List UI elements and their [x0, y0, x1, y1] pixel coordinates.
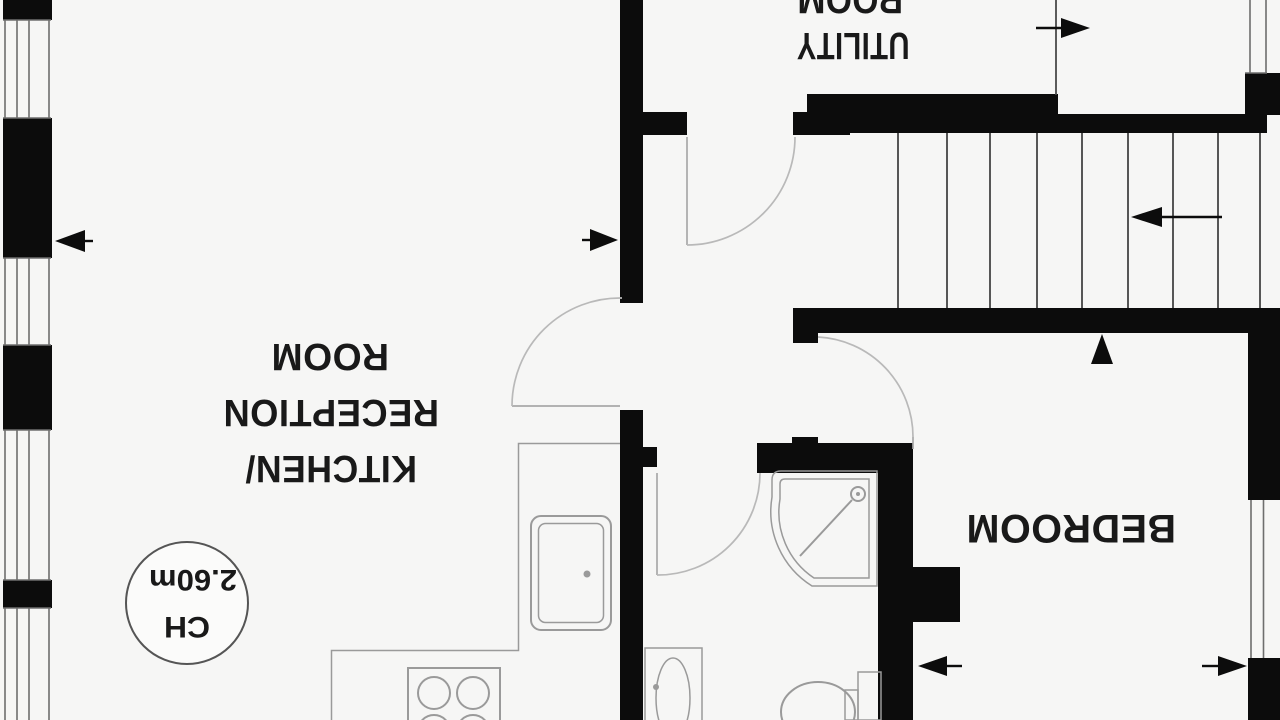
bedroom-arrow-right	[1202, 656, 1247, 676]
reception-arrow-left	[55, 230, 93, 252]
kitchen-label-line2: RECEPTION	[223, 391, 439, 433]
kitchen-sink	[531, 516, 611, 630]
utility-arrow	[1036, 18, 1090, 38]
window-left-3	[3, 430, 51, 580]
window-left-4	[3, 608, 51, 720]
stair-treads	[898, 133, 1260, 308]
shower-diagonal	[800, 500, 852, 556]
kitchen-label-line3: ROOM	[271, 335, 389, 377]
window-top-right	[1245, 0, 1267, 73]
window-left-1	[3, 20, 51, 118]
ceiling-height-line2: 2.60m	[149, 563, 237, 596]
kitchen-reception-label: KITCHEN/ RECEPTION ROOM	[223, 335, 439, 489]
ceiling-height-line1: CH	[164, 610, 210, 643]
utility-label-line2: ROOM	[797, 0, 903, 20]
ceiling-height-badge: CH 2.60m	[126, 542, 248, 664]
hob-burner	[418, 715, 450, 720]
window-bedroom-right	[1251, 500, 1264, 658]
reception-arrow-right	[582, 229, 618, 251]
bathroom-basin	[645, 648, 702, 720]
window-left-2	[3, 258, 51, 345]
bedroom-arrow-left	[918, 656, 962, 676]
central-wall	[620, 0, 687, 720]
floor-plan-page: KITCHEN/ RECEPTION ROOM UTILITY ROOM BED…	[0, 0, 1280, 720]
bedroom-entry-arrow	[1091, 334, 1113, 364]
utility-label-line1: UTILITY	[797, 24, 910, 66]
basin-tap-dot	[653, 684, 659, 690]
stair-direction-arrow	[1131, 207, 1222, 227]
toilet	[781, 672, 881, 720]
door-kitchen	[512, 298, 622, 406]
ceiling-height-circle	[126, 542, 248, 664]
sink-drain-dot	[584, 571, 591, 578]
kitchen-label-line1: KITCHEN/	[245, 447, 417, 489]
left-exterior-wall	[3, 0, 52, 720]
bedroom-label: BEDROOM	[966, 506, 1176, 550]
door-bathroom	[657, 473, 760, 575]
door-utility	[687, 137, 795, 245]
bedroom-label-text: BEDROOM	[966, 506, 1176, 550]
door-bedroom	[818, 337, 913, 449]
utility-room-label: UTILITY ROOM	[797, 0, 910, 66]
shower-enclosure	[771, 471, 877, 586]
hob-burner	[457, 677, 489, 709]
floor-plan-svg: KITCHEN/ RECEPTION ROOM UTILITY ROOM BED…	[0, 0, 1280, 720]
kitchen-hob	[408, 668, 500, 720]
hob-burner	[457, 715, 489, 720]
hob-burner	[418, 677, 450, 709]
staircase	[793, 133, 1280, 343]
